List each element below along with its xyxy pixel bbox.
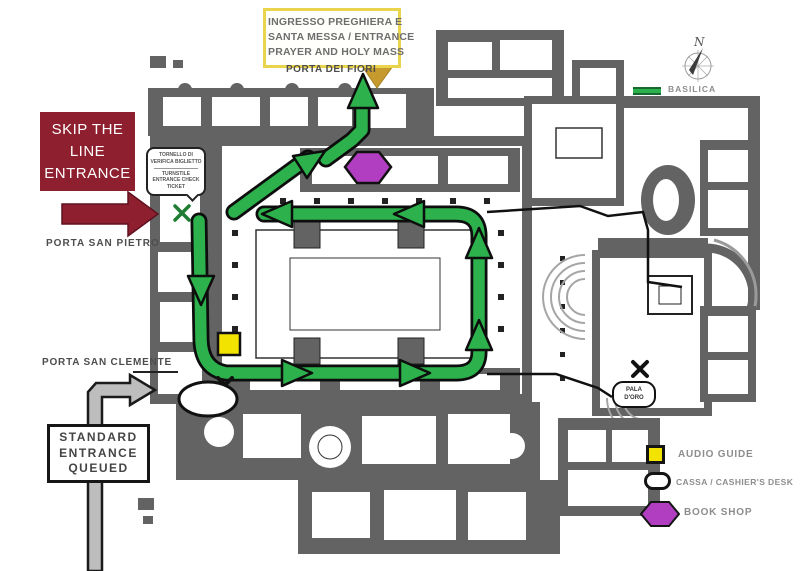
compass-cross-lines	[682, 50, 714, 82]
callout-divider	[154, 168, 198, 169]
turnstile-callout: TORNELLO DI VERIFICA BIGLIETTO TURNSTILE…	[146, 147, 206, 196]
callout-line: VERIFICA BIGLIETTO	[149, 159, 203, 166]
skip-line-text: ENTRANCE	[40, 163, 135, 185]
compass-needle	[689, 48, 703, 75]
standard-entrance-text: ENTRANCE	[50, 446, 147, 462]
cashier-desk-marker	[179, 382, 237, 416]
callout-line: TICKET	[149, 184, 203, 191]
legend-audio-guide-label: AUDIO GUIDE	[678, 449, 753, 460]
audio-guide-marker	[218, 333, 240, 355]
holy-mass-info-box: INGRESSO PREGHIERA E SANTA MESSA / ENTRA…	[263, 8, 401, 68]
callout-line: TORNELLO DI	[149, 152, 203, 159]
compass-north-label: N	[693, 35, 705, 49]
standard-entrance-text: QUEUED	[50, 461, 147, 477]
standard-entrance-text: STANDARD	[50, 430, 147, 446]
callout-line: TURNSTILE	[149, 171, 203, 178]
pala-doro-line: D'ORO	[614, 394, 654, 402]
legend-basilica-label: BASILICA	[668, 84, 716, 94]
porta-dei-fiori-label: PORTA DEI FIORI	[286, 64, 376, 75]
legend-cashier-desk-label: CASSA / CASHIER'S DESK	[676, 477, 793, 487]
callout-line: ENTRANCE CHECK	[149, 177, 203, 184]
porta-san-clemente-label: PORTA SAN CLEMENTE	[42, 357, 172, 368]
skip-line-text: SKIP THE	[40, 119, 135, 141]
basilica-entrance-map: INGRESSO PREGHIERA E SANTA MESSA / ENTRA…	[0, 0, 800, 571]
info-box-line: PRAYER AND HOLY MASS	[268, 45, 396, 60]
legend-audio-guide-swatch	[646, 445, 665, 464]
legend-basilica-swatch	[633, 87, 661, 95]
legend-book-shop-swatch	[640, 501, 680, 527]
pala-doro-line: PALA	[614, 386, 654, 394]
legend-book-shop-label: BOOK SHOP	[684, 507, 752, 518]
skip-the-line-box: SKIP THE LINE ENTRANCE	[40, 112, 135, 191]
info-box-line: INGRESSO PREGHIERA E	[268, 15, 396, 30]
porta-san-pietro-label: PORTA SAN PIETRO	[46, 238, 160, 249]
legend-cashier-desk-swatch	[644, 472, 671, 490]
info-box-line: SANTA MESSA / ENTRANCE	[268, 30, 396, 45]
book-shop-hexagon	[641, 502, 679, 526]
skip-line-text: LINE	[40, 141, 135, 163]
skip-the-line-arrow	[62, 192, 158, 236]
compass-rose: N	[676, 34, 720, 84]
standard-entrance-box: STANDARD ENTRANCE QUEUED	[47, 424, 150, 483]
pala-doro-label: PALA D'ORO	[612, 381, 656, 408]
